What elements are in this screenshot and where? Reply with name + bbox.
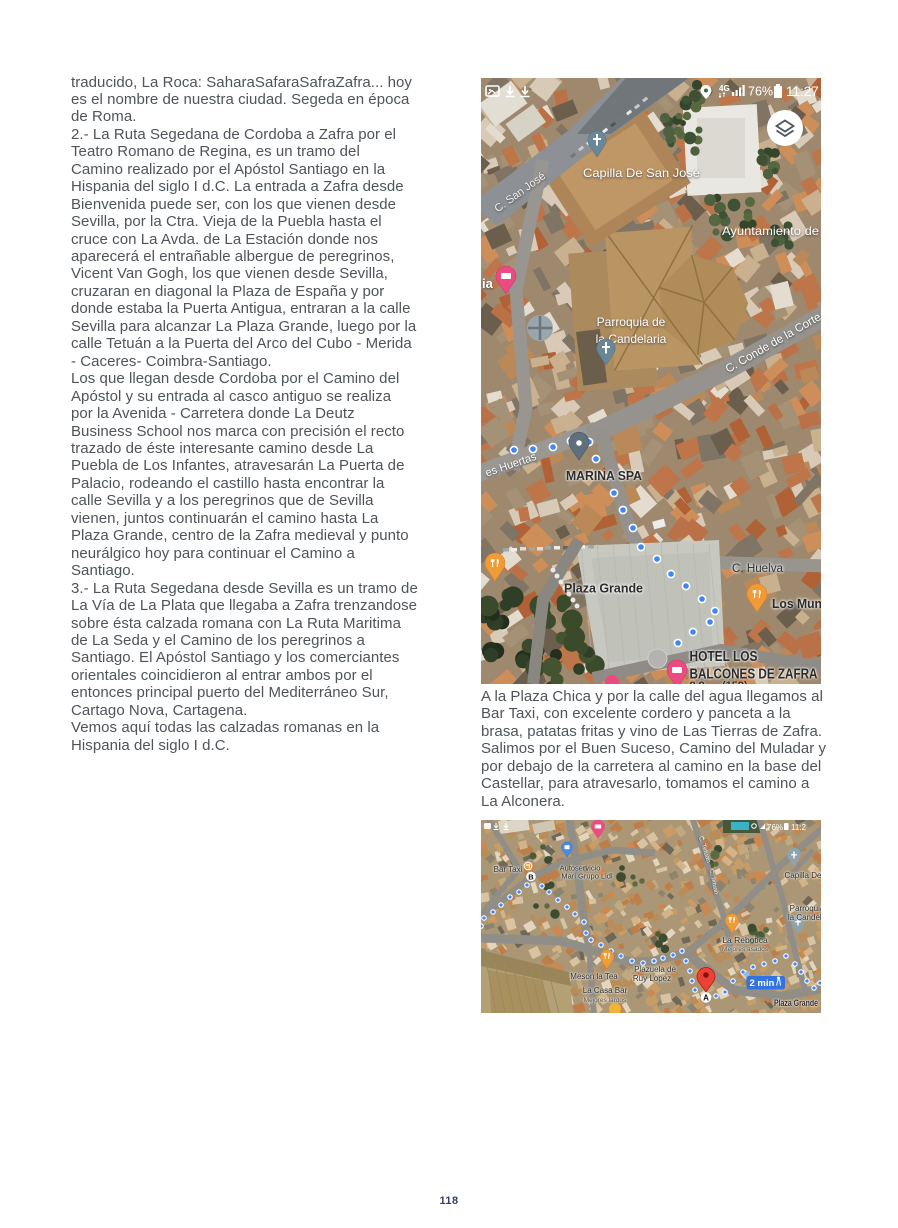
- svg-text:Ruy Lopez: Ruy Lopez: [633, 974, 671, 983]
- svg-text:ia: ia: [482, 276, 494, 291]
- svg-text:HOTEL LOS: HOTEL LOS: [690, 649, 758, 665]
- svg-text:la Candela: la Candela: [788, 913, 821, 922]
- svg-text:La Casa Bar: La Casa Bar: [583, 986, 628, 995]
- svg-text:Parroquia de: Parroquia de: [597, 315, 666, 329]
- svg-text:B: B: [528, 872, 534, 881]
- svg-text:76%: 76%: [748, 85, 773, 99]
- svg-text:Los Mun: Los Mun: [772, 597, 821, 611]
- svg-text:Capilla De San José: Capilla De San José: [583, 166, 700, 180]
- svg-text:(159): (159): [722, 680, 748, 684]
- svg-text:Meson la Tea: Meson la Tea: [570, 972, 618, 981]
- svg-text:Plazuela de: Plazuela de: [634, 965, 676, 974]
- svg-text:Parroquia: Parroquia: [790, 904, 821, 913]
- svg-text:Mejores lardos: Mejores lardos: [584, 997, 627, 1004]
- svg-text:76%: 76%: [767, 823, 783, 832]
- svg-text:8,9: 8,9: [690, 680, 705, 684]
- svg-text:Ayuntamiento de: Ayuntamiento de: [722, 224, 819, 238]
- svg-text:2 min: 2 min: [750, 978, 775, 989]
- svg-text:Mejores asados: Mejores asados: [722, 946, 769, 953]
- svg-text:A: A: [703, 993, 709, 1002]
- svg-text:BALCONES DE ZAFRA: BALCONES DE ZAFRA: [690, 667, 818, 683]
- svg-text:La Rebotica: La Rebotica: [722, 935, 768, 945]
- svg-text:4G: 4G: [719, 84, 730, 93]
- svg-text:Plaza Grande: Plaza Grande: [774, 998, 818, 1008]
- svg-text:Plaza Grande: Plaza Grande: [564, 581, 643, 596]
- svg-text:C. Huelva: C. Huelva: [732, 563, 784, 575]
- svg-text:11:2: 11:2: [791, 823, 807, 832]
- svg-text:Bar Taxi: Bar Taxi: [494, 865, 523, 874]
- svg-text:MARINA SPA: MARINA SPA: [566, 468, 643, 483]
- svg-text:11:27: 11:27: [786, 84, 819, 99]
- svg-text:Capilla De: Capilla De: [785, 871, 821, 880]
- svg-text:Mari Grupo Lidl: Mari Grupo Lidl: [561, 872, 613, 881]
